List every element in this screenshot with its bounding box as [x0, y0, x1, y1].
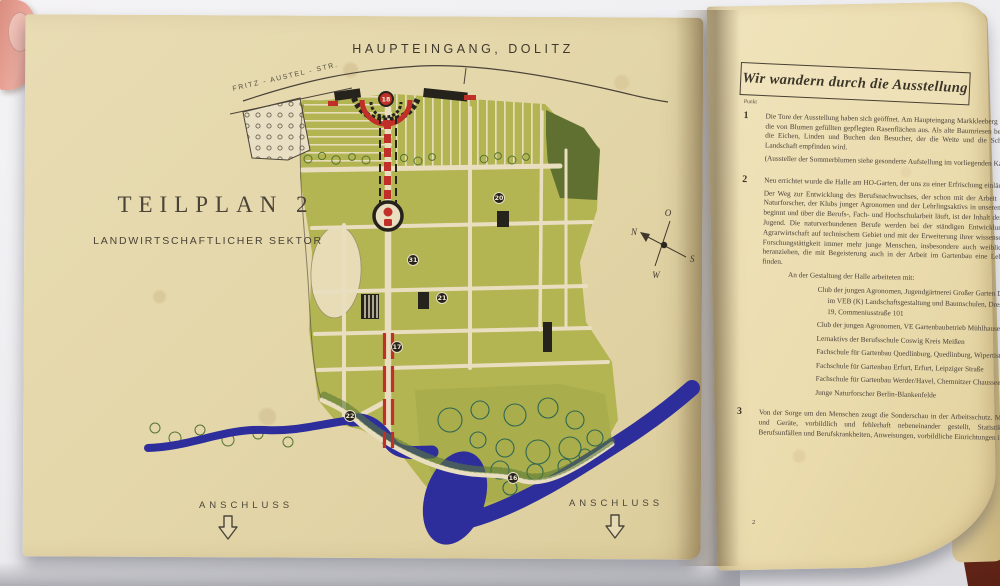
svg-text:18: 18 [382, 96, 391, 103]
main-entrance-label: HAUPTEINGANG, DOLITZ [318, 42, 608, 56]
compass-rose: O N S W [630, 208, 695, 280]
anschluss-arrows [219, 515, 624, 539]
map-marker: 16 [508, 473, 519, 484]
compass-north-label: N [630, 227, 638, 237]
photo-of-exhibition-brochure: 18 20 31 21 17 22 [0, 0, 1000, 586]
parcel-grid-left [304, 94, 392, 168]
plan-subtitle: LANDWIRTSCHAFTLICHER SEKTOR [88, 235, 328, 247]
item-number: 3 [736, 407, 759, 440]
map-marker: 17 [392, 342, 403, 353]
item-paragraph: Von der Sorge um den Menschen zeugt die … [758, 408, 1000, 443]
compass-west-label: W [652, 270, 661, 280]
svg-text:22: 22 [346, 413, 355, 420]
compass-south-label: S [690, 254, 695, 264]
item-paragraph: Der Weg zur Entwicklung des Berufsnachwu… [762, 188, 1000, 272]
list-item: 3 Von der Sorge um den Menschen zeugt di… [736, 407, 1000, 446]
svg-text:17: 17 [393, 344, 402, 351]
list-item: 2 Neu errichtet wurde die Halle am HO-Ga… [737, 175, 1000, 405]
list-item: 1 Die Tore der Ausstellung haben sich ge… [742, 111, 1000, 173]
svg-text:21: 21 [438, 295, 447, 302]
anschluss-label-right: ANSCHLUSS [556, 498, 676, 509]
plan-title: TEILPLAN 2 [116, 192, 316, 218]
anschluss-arrow-left [219, 516, 237, 539]
anschluss-arrow-right [606, 515, 624, 538]
map-marker: 31 [408, 255, 419, 266]
text-column: Punkt 1 Die Tore der Ausstellung haben s… [736, 98, 1000, 455]
map-marker: 20 [494, 193, 505, 204]
compass-east-label: O [665, 208, 672, 218]
map-marker: 18 [379, 92, 393, 106]
svg-text:31: 31 [409, 257, 418, 264]
striped-hall [361, 294, 379, 319]
contributor-entry: Club der jungen Agronomen, Jugendgärtner… [761, 282, 1000, 321]
chapter-heading: Wir wandern durch die Ausstellung [742, 70, 968, 97]
map-marker: 21 [437, 293, 448, 304]
item-number: 1 [742, 111, 765, 166]
item-paragraph: Die Tore der Ausstellung haben sich geöf… [765, 111, 1000, 156]
svg-text:20: 20 [495, 195, 504, 202]
item-note: (Aussteller der Sommerblumen siehe geson… [765, 153, 1000, 169]
anschluss-label-left: ANSCHLUSS [186, 500, 306, 511]
map-marker: 22 [345, 411, 356, 422]
svg-text:16: 16 [509, 475, 518, 482]
contributor-entry: Junge Naturforscher Berlin-Blankenfelde [759, 385, 1000, 402]
page-number: 2 [752, 519, 755, 526]
